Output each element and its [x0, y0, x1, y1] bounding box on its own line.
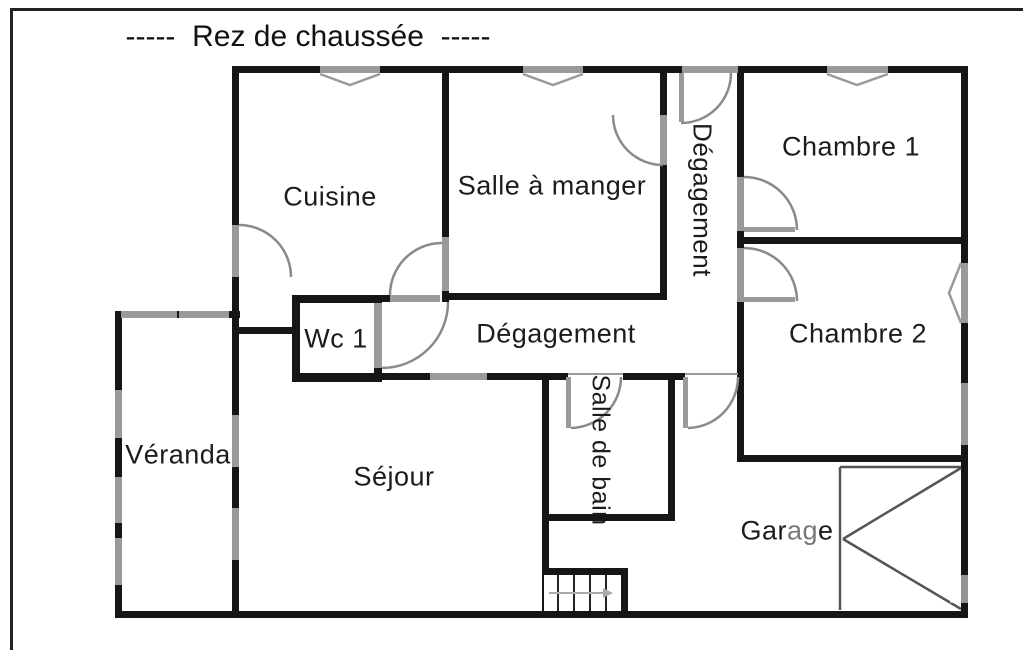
wall — [292, 295, 382, 303]
window-icon — [320, 66, 380, 73]
watermark — [950, 575, 995, 603]
room-label-wc-1: Wc 1 — [304, 324, 368, 355]
door-leaf — [679, 73, 684, 122]
door-leaf — [683, 377, 688, 428]
window-icon — [115, 390, 122, 438]
wall — [292, 295, 300, 382]
wall — [668, 373, 675, 521]
door-opening — [374, 303, 382, 368]
wall — [542, 568, 628, 575]
window-icon — [232, 415, 239, 467]
watermark — [786, 516, 816, 546]
page-title: ----- Rez de chaussée ----- — [125, 20, 490, 54]
door-arc-icon — [744, 248, 797, 301]
door-opening — [737, 177, 744, 231]
wall — [487, 373, 568, 380]
window-icon — [827, 74, 888, 85]
room-label-chambre-1: Chambre 1 — [782, 132, 920, 163]
wall — [623, 373, 685, 380]
door-arc-icon — [239, 225, 291, 277]
window-icon — [523, 74, 583, 85]
door-arc-icon — [681, 73, 731, 123]
wall — [442, 293, 667, 300]
stairs-icon — [549, 575, 613, 611]
door-leaf — [744, 297, 795, 302]
stairs-edge — [542, 575, 544, 611]
door-opening — [430, 373, 487, 380]
wall — [621, 568, 628, 618]
window-icon — [827, 66, 888, 73]
window-icon — [320, 74, 380, 85]
window-icon — [115, 477, 122, 523]
room-label-degagement-couloir: Dégagement — [687, 123, 718, 277]
wall — [737, 455, 968, 462]
wall — [442, 66, 449, 237]
wall — [381, 295, 390, 302]
door-leaf — [566, 377, 571, 428]
wall — [737, 237, 968, 244]
stairs-arrow-icon — [603, 588, 613, 598]
door-opening — [232, 225, 239, 277]
door-arc-icon — [382, 302, 448, 368]
room-label-salle-a-manger: Salle à manger — [458, 171, 647, 202]
door-arc-icon — [688, 377, 738, 428]
door-arc-icon — [744, 177, 797, 230]
door-arc-icon — [613, 115, 663, 165]
window-icon — [232, 508, 239, 560]
watermark — [952, 383, 990, 445]
door-threshold — [685, 373, 738, 375]
door-opening — [737, 248, 744, 302]
entry-door-opening — [682, 66, 738, 73]
door-opening — [390, 295, 440, 302]
window-icon — [179, 311, 229, 318]
wall — [542, 373, 549, 575]
window-icon — [523, 66, 583, 73]
door-leaf — [442, 237, 449, 291]
wall — [232, 327, 295, 334]
room-label-salle-de-bain: Salle de bain — [586, 374, 615, 525]
window-icon — [961, 263, 968, 323]
wall — [660, 66, 667, 300]
door-opening — [660, 115, 667, 165]
wall — [292, 373, 430, 380]
window-icon — [949, 263, 961, 323]
wall — [115, 611, 968, 618]
frame-top-line — [10, 8, 1023, 11]
wall — [961, 66, 968, 618]
floor-plan: ----- Rez de chaussée ----- — [0, 0, 1025, 650]
room-label-degagement: Dégagement — [476, 319, 636, 350]
window-icon — [115, 538, 122, 585]
room-label-cuisine: Cuisine — [283, 182, 377, 213]
garage-door-icon — [840, 467, 961, 610]
frame-left-line — [10, 8, 13, 650]
room-label-veranda: Véranda — [125, 440, 231, 471]
room-label-sejour: Séjour — [353, 462, 434, 493]
door-arc-icon — [390, 243, 442, 295]
room-label-chambre-2: Chambre 2 — [789, 319, 927, 350]
window-icon — [121, 311, 177, 318]
door-leaf — [744, 227, 795, 232]
